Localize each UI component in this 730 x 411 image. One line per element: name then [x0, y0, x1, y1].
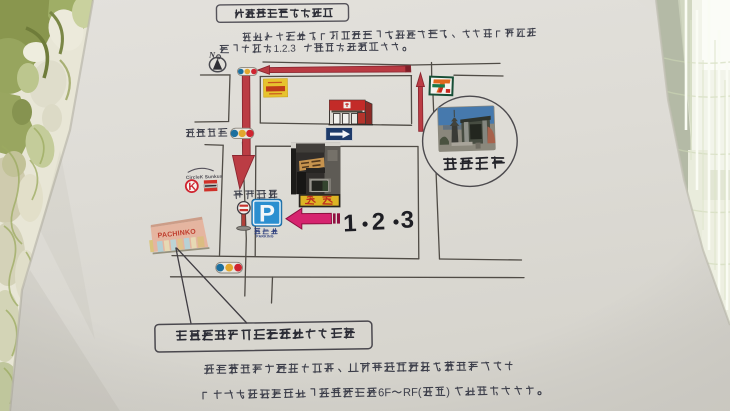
svg-text:3: 3 — [400, 206, 414, 233]
svg-text:RF(: RF( — [403, 387, 422, 399]
svg-text:1.2.3: 1.2.3 — [274, 44, 297, 55]
svg-text:1: 1 — [343, 210, 357, 237]
svg-text:K: K — [188, 181, 196, 193]
svg-text:PARKING: PARKING — [256, 234, 274, 238]
svg-text:2: 2 — [371, 208, 385, 235]
svg-text:6F: 6F — [378, 387, 391, 399]
svg-text:P: P — [259, 201, 275, 228]
svg-text:): ) — [446, 386, 450, 398]
